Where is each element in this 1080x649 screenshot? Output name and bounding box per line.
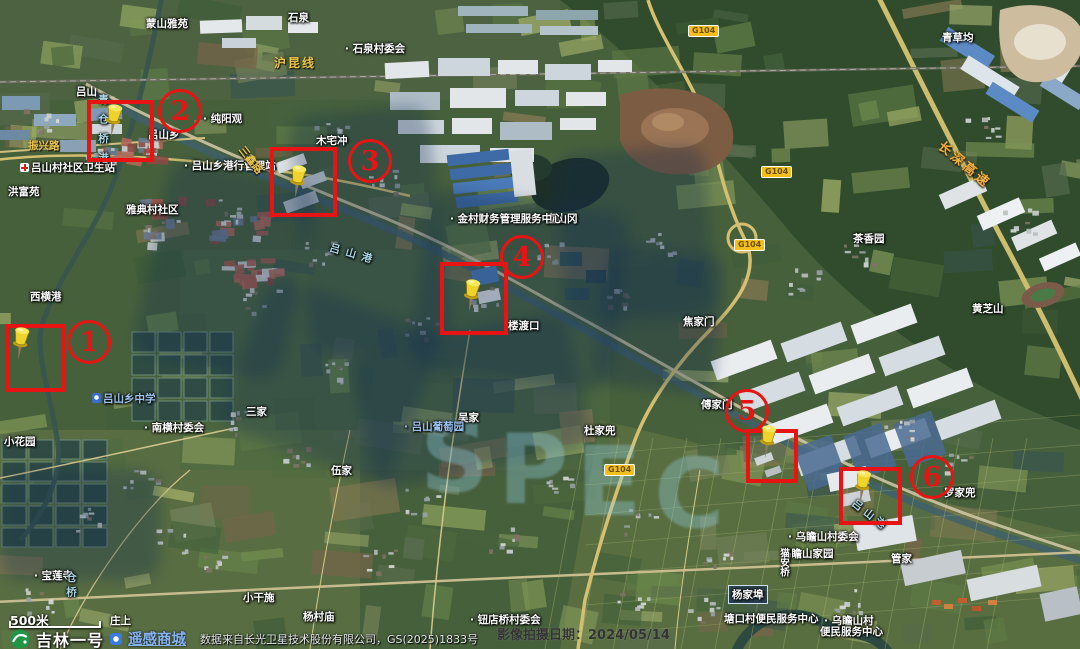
pushpin-icon[interactable] — [5, 323, 35, 363]
annotation-number: 1 — [67, 320, 111, 364]
annotation-number: 6 — [910, 455, 954, 499]
pushpin-icon[interactable] — [282, 161, 312, 201]
attribution-text: 数据来自长光卫星技术股份有限公司，GS(2025)1833号 — [200, 631, 478, 647]
capture-date-label: 影像拍摄日期：2024/05/14 — [497, 624, 670, 643]
annotation-number: 3 — [348, 139, 392, 183]
jilin1-logo-text: 吉林一号 — [36, 627, 104, 649]
store-link[interactable]: 遥感商城 — [128, 628, 186, 649]
pushpin-icon[interactable] — [98, 100, 128, 140]
jilin1-logo-icon[interactable] — [10, 629, 30, 649]
annotations-layer: 123456 — [0, 0, 1080, 649]
pushpin-icon[interactable] — [752, 421, 782, 461]
pushpin-icon[interactable] — [456, 275, 486, 315]
annotation-number: 4 — [500, 235, 544, 279]
map-viewport[interactable]: SPEC 石泉· 石泉村委会蒙山雅苑· 纯阳观吕山乡· 吕山乡港行管理站木宅冲吕… — [0, 0, 1080, 649]
pushpin-icon[interactable] — [847, 466, 877, 506]
store-icon — [110, 633, 122, 645]
annotation-number: 2 — [158, 89, 202, 133]
